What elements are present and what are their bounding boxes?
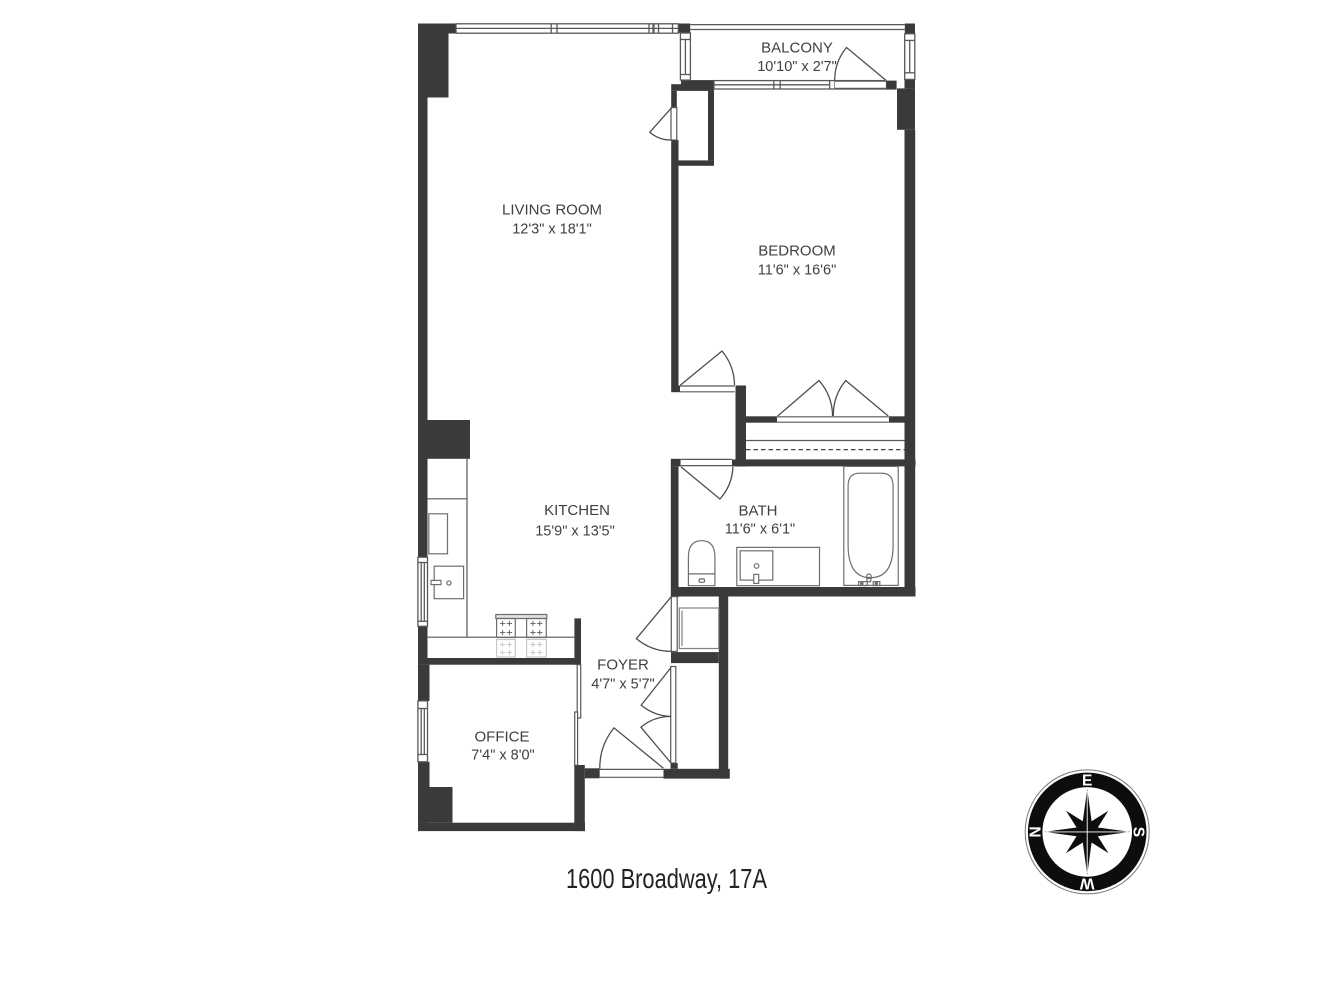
svg-text:OFFICE: OFFICE [475,729,530,746]
svg-text:FOYER: FOYER [597,657,649,674]
svg-text:15'9" x 13'5": 15'9" x 13'5" [535,524,615,540]
svg-text:10'10" x 2'7": 10'10" x 2'7" [757,59,837,75]
svg-text:W: W [1080,874,1095,891]
svg-text:LIVING ROOM: LIVING ROOM [502,202,602,219]
svg-text:N: N [1028,826,1045,837]
svg-text:KITCHEN: KITCHEN [544,502,610,519]
svg-text:E: E [1082,772,1092,789]
svg-text:BALCONY: BALCONY [761,40,833,57]
svg-text:BEDROOM: BEDROOM [758,243,836,260]
svg-text:S: S [1130,827,1147,837]
svg-text:4'7" x 5'7": 4'7" x 5'7" [591,677,654,693]
svg-text:12'3" x 18'1": 12'3" x 18'1" [512,222,592,238]
svg-text:7'4" x 8'0": 7'4" x 8'0" [471,748,534,764]
svg-text:11'6" x 6'1": 11'6" x 6'1" [725,522,795,538]
svg-text:1600 Broadway, 17A: 1600 Broadway, 17A [566,863,767,894]
svg-text:11'6" x 16'6": 11'6" x 16'6" [758,263,836,279]
svg-text:BATH: BATH [739,503,778,520]
